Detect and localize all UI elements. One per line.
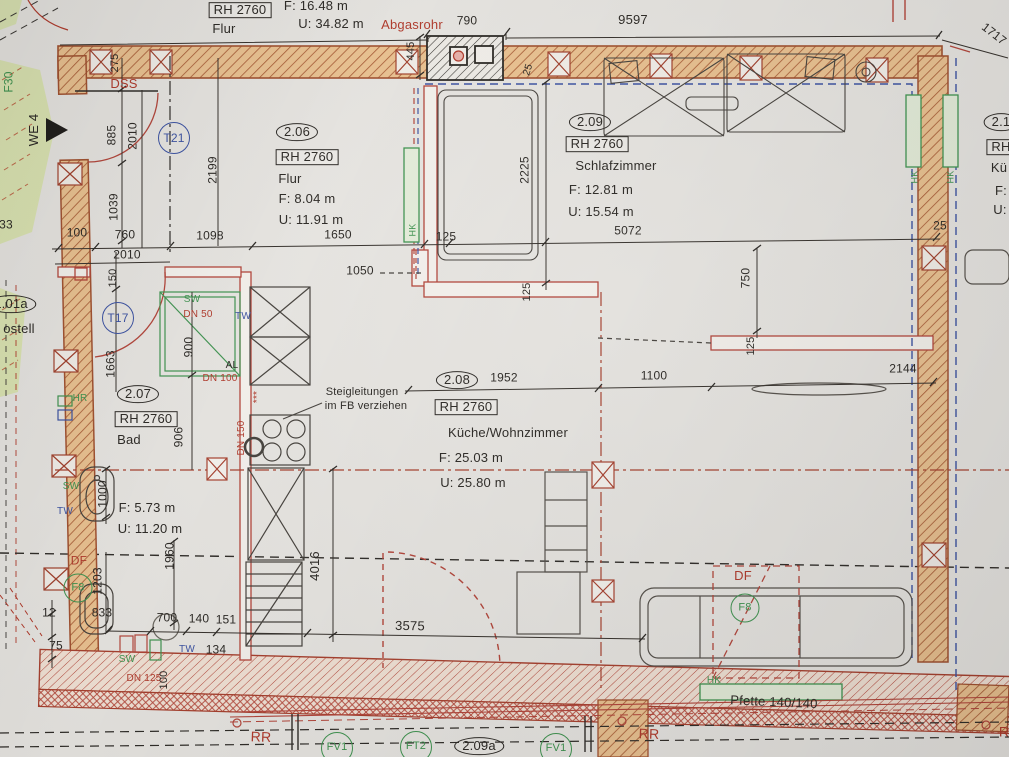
hr-label: HR xyxy=(73,394,88,405)
shower-tw-label: TW xyxy=(235,312,251,323)
dim-2199: 2199 xyxy=(207,156,220,184)
al-label: AL xyxy=(226,361,239,372)
room-207-name: Bad xyxy=(117,433,141,447)
dim-1203: 1203 xyxy=(92,567,105,595)
room-209-number: 2.09 xyxy=(569,113,611,131)
dim-760: 760 xyxy=(115,229,136,242)
dim-2010-h: 2010 xyxy=(113,249,141,262)
dim-140: 140 xyxy=(189,613,210,626)
room-206-name: Flur xyxy=(278,172,301,186)
dim-150: 150 xyxy=(108,269,120,288)
dim-885: 885 xyxy=(106,125,119,146)
door-tag-t21: T21 xyxy=(158,122,190,154)
room-right-rh: RH xyxy=(986,139,1009,155)
rr-label-3: R xyxy=(999,725,1009,740)
room-207-perimeter: U: 11.20 m xyxy=(118,522,183,536)
top-flur-name: Flur xyxy=(212,22,235,36)
note-steigleitungen-1: Steigleitungen xyxy=(326,387,399,399)
dim-3575: 3575 xyxy=(395,619,425,633)
shower-sw-label: SW xyxy=(184,295,201,306)
dim-900: 900 xyxy=(183,337,196,358)
room-207-number: 2.07 xyxy=(117,385,159,403)
f30-label: F30 xyxy=(3,71,16,92)
dim-275: 275 xyxy=(110,54,122,73)
dim-100-b: 100 xyxy=(159,671,171,690)
dim-1952: 1952 xyxy=(490,372,518,385)
dn150-label: DN 150 xyxy=(237,420,248,455)
pfette-label: Pfette 140/140 xyxy=(730,693,818,710)
dim-2144: 2144 xyxy=(889,363,917,376)
room-209-area: F: 12.81 m xyxy=(569,183,633,197)
riser-stars: *** xyxy=(253,391,264,403)
dim-1050: 1050 xyxy=(346,265,374,278)
hk-right-outer-label: HK xyxy=(946,171,955,184)
dim-33-partial: 33 xyxy=(0,219,13,232)
dim-25-right: 25 xyxy=(933,220,947,233)
bad-sw-label: SW xyxy=(63,482,80,493)
room-right-area: F: xyxy=(995,184,1007,198)
room-209-perimeter: U: 15.54 m xyxy=(568,205,634,219)
dim-1100: 1100 xyxy=(641,370,668,383)
room-right-number: 2.1 xyxy=(984,113,1009,131)
dss-label: DSS xyxy=(110,77,137,91)
room-right-perimeter: U: xyxy=(993,203,1006,217)
window-tag-f8-left: F8 xyxy=(64,574,93,603)
rr-label-1: RR xyxy=(250,729,271,744)
floor-plan: RH 2760FlurF: 16.48 mU: 34.82 mAbgasrohr… xyxy=(0,0,1009,757)
room-208-perimeter: U: 25.80 m xyxy=(440,476,506,490)
hk-right-inner-label: HK xyxy=(910,171,919,184)
room-206-perimeter: U: 11.91 m xyxy=(279,213,344,227)
dn125-label: DN 125 xyxy=(126,674,161,685)
room-208-area: F: 25.03 m xyxy=(439,451,503,465)
dim-1650: 1650 xyxy=(324,229,352,242)
dim-100: 100 xyxy=(67,227,88,240)
dim-1717: 1717 xyxy=(979,21,1008,48)
labels-layer: RH 2760FlurF: 16.48 mU: 34.82 mAbgasrohr… xyxy=(0,0,1009,757)
room-209-rh: RH 2760 xyxy=(566,136,629,152)
dim-1960: 1960 xyxy=(164,542,177,570)
we4-label: WE 4 xyxy=(27,114,41,147)
df-right-label: DF xyxy=(734,569,752,583)
room-206-rh: RH 2760 xyxy=(276,149,339,165)
hk-flur-label: HK xyxy=(408,224,417,237)
room-209a-number: 2.09a xyxy=(454,737,504,755)
neighbor-room-101a: 1.01a xyxy=(0,295,36,313)
room-right-name: Kü xyxy=(991,161,1007,175)
dim-125-c: 125 xyxy=(746,337,758,356)
top-flur-rh: RH 2760 xyxy=(209,2,272,18)
window-tag-f8-right: F8 xyxy=(731,594,760,623)
room-207-area: F: 5.73 m xyxy=(119,501,176,515)
room-206-number: 2.06 xyxy=(276,123,318,141)
dim-12: 12 xyxy=(42,607,56,620)
bottom-sw-label: SW xyxy=(119,655,136,666)
door-tag-t17: T17 xyxy=(102,302,134,334)
room-208-name: Küche/Wohnzimmer xyxy=(448,426,568,440)
dim-1000: 1000 xyxy=(97,480,110,508)
dim-750: 750 xyxy=(740,268,753,289)
bad-tw-label: TW xyxy=(57,507,73,518)
note-steigleitungen-2: im FB verziehen xyxy=(325,401,407,413)
dim-125-b: 125 xyxy=(522,283,534,302)
bottom-tw-label: TW xyxy=(179,645,195,656)
top-flur-perimeter: U: 34.82 m xyxy=(298,17,364,31)
dim-1663: 1663 xyxy=(105,350,118,378)
dim-125-a: 125 xyxy=(436,231,457,244)
dim-5072: 5072 xyxy=(614,225,642,238)
room-209-name: Schlafzimmer xyxy=(575,159,656,173)
df-left-label: DF xyxy=(71,555,87,568)
dim-2010-v: 2010 xyxy=(127,122,140,150)
dim-906: 906 xyxy=(173,427,186,448)
dim-445: 445 xyxy=(406,42,418,61)
dim-833: 833 xyxy=(92,607,113,620)
window-tag-ft2: FT2 xyxy=(400,731,432,757)
dim-4016: 4016 xyxy=(308,551,322,581)
dim-1098: 1098 xyxy=(196,230,224,243)
dim-1039: 1039 xyxy=(108,193,121,221)
dim-2225: 2225 xyxy=(519,156,532,184)
dim-790: 790 xyxy=(457,15,478,28)
rr-label-2: RR xyxy=(638,726,659,741)
room-208-number: 2.08 xyxy=(436,371,478,389)
abgasrohr-label: Abgasrohr xyxy=(381,18,443,32)
neighbor-room-name: ostell xyxy=(3,322,35,336)
dim-700: 700 xyxy=(157,612,178,625)
dn100-label: DN 100 xyxy=(202,374,237,385)
top-flur-area: F: 16.48 m xyxy=(284,0,348,13)
room-207-rh: RH 2760 xyxy=(115,411,178,427)
room-206-area: F: 8.04 m xyxy=(279,192,336,206)
dim-151: 151 xyxy=(216,614,237,627)
shower-dn50-label: DN 50 xyxy=(183,310,212,321)
window-tag-fv1-b: FV1 xyxy=(540,733,572,757)
hk-sofa-label: HK xyxy=(707,676,721,687)
window-tag-fv1-a: FV1 xyxy=(321,732,353,757)
dim-9597: 9597 xyxy=(618,13,648,27)
dim-134: 134 xyxy=(206,644,227,657)
dim-75: 75 xyxy=(49,640,63,653)
dim-25-chimney: 25 xyxy=(522,63,536,77)
room-208-rh: RH 2760 xyxy=(435,399,498,415)
